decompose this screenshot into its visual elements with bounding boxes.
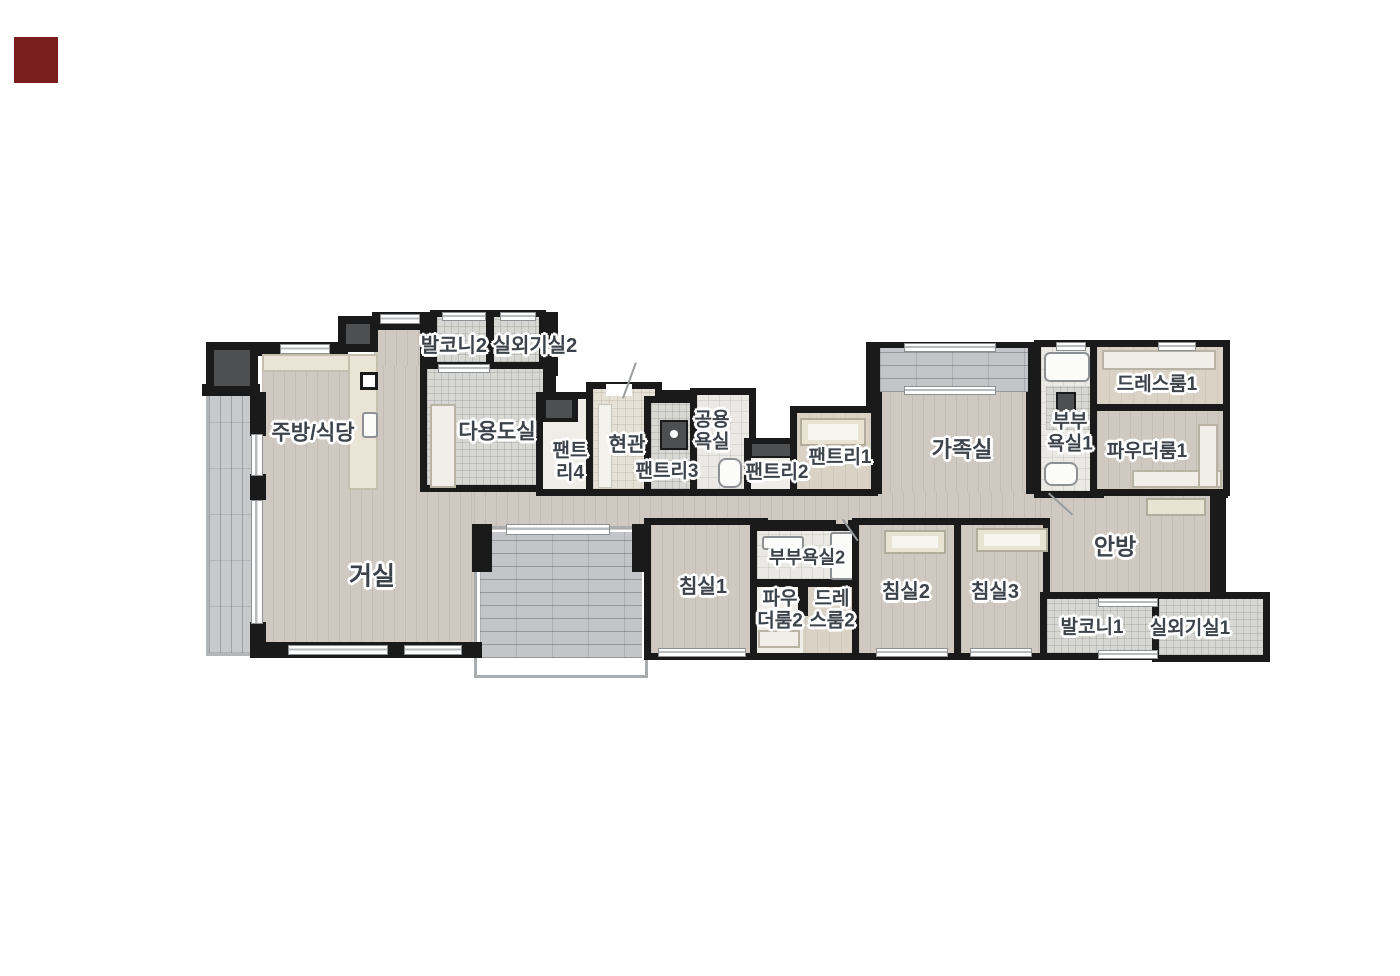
vanity-counter bbox=[1198, 424, 1218, 488]
room-label-master-bath1-line2: 욕실1 bbox=[1047, 434, 1093, 456]
room-label-entrance: 현관 bbox=[609, 434, 646, 458]
room-label-powder2-line2: 더룸2 bbox=[757, 611, 803, 633]
window bbox=[904, 343, 996, 352]
room-label-pantry2: 팬트리2 bbox=[745, 462, 808, 484]
window bbox=[876, 648, 948, 657]
room-label-common-bath-line1: 공용 bbox=[695, 410, 730, 432]
room-label-balcony2-outdoor2: 발코니2 실외기실2 bbox=[421, 335, 578, 359]
left-balcony-floor bbox=[206, 392, 256, 656]
window bbox=[438, 364, 490, 373]
room-label-bedroom2: 침실2 bbox=[882, 581, 930, 605]
room-label-pantry4-line1: 팬트 bbox=[553, 441, 588, 463]
window bbox=[970, 648, 1032, 657]
room-label-pantry1: 팬트리1 bbox=[808, 447, 871, 469]
bathtub bbox=[1044, 352, 1090, 382]
floor-plan: 발코니2 실외기실2 주방/식당 다용도실 팬트리4 현관 팬트리3 공용욕실 … bbox=[0, 0, 1400, 976]
room-label-bedroom1: 침실1 bbox=[679, 576, 727, 600]
kitchen-counter bbox=[262, 354, 350, 372]
duct-shaft bbox=[546, 400, 572, 418]
window bbox=[288, 645, 388, 655]
floor-kitchen-nook bbox=[374, 326, 424, 366]
cooktop bbox=[360, 372, 378, 390]
room-label-powder2: 파우더룸2 bbox=[757, 589, 803, 634]
room-label-powder2-line1: 파우 bbox=[757, 589, 803, 611]
room-label-pantry4-line2: 리4 bbox=[553, 463, 588, 485]
room-label-utility: 다용도실 bbox=[458, 421, 535, 446]
wall-segment bbox=[1210, 488, 1226, 608]
red-marker-square bbox=[14, 37, 58, 83]
window bbox=[658, 648, 746, 657]
window bbox=[1098, 650, 1158, 659]
window bbox=[1098, 598, 1158, 607]
room-label-balcony1: 발코니1 bbox=[1060, 617, 1123, 639]
window bbox=[506, 524, 610, 535]
wall-segment bbox=[250, 474, 266, 500]
closet-inner bbox=[984, 534, 1040, 546]
kitchen-sink bbox=[362, 412, 378, 438]
room-label-pantry4: 팬트리4 bbox=[553, 441, 588, 486]
room-label-powder1: 파우더룸1 bbox=[1107, 441, 1188, 463]
room-label-kitchen-dining: 주방/식당 bbox=[271, 422, 354, 447]
wall-segment bbox=[250, 392, 266, 436]
window bbox=[380, 314, 420, 324]
room-label-master-bath1: 부부욕실1 bbox=[1047, 412, 1093, 457]
washbasin-drain bbox=[670, 430, 678, 438]
toilet bbox=[718, 458, 742, 488]
wall-segment bbox=[472, 524, 492, 572]
room-label-living: 거실 bbox=[349, 562, 395, 592]
room-label-bedroom3: 침실3 bbox=[971, 581, 1019, 605]
utility-cabinet bbox=[430, 404, 456, 488]
room-label-dress2-line1: 드레 bbox=[809, 589, 855, 611]
room-label-outdoor-unit1: 실외기실1 bbox=[1150, 618, 1231, 640]
window bbox=[404, 645, 462, 655]
room-label-dress2: 드레스룸2 bbox=[809, 589, 855, 634]
wardrobe bbox=[1102, 350, 1216, 370]
room-label-pantry3: 팬트리3 bbox=[635, 461, 698, 483]
bathtub-small bbox=[1044, 462, 1078, 486]
room-label-dress1: 드레스룸1 bbox=[1117, 374, 1198, 396]
window bbox=[904, 386, 996, 395]
terrace-floor bbox=[480, 532, 642, 658]
room-label-common-bath-line2: 욕실 bbox=[695, 432, 730, 454]
room-label-family: 가족실 bbox=[932, 437, 993, 463]
closet-inner bbox=[808, 424, 858, 440]
room-label-master-bedroom: 안방 bbox=[1094, 533, 1136, 560]
room-label-dress2-line2: 스룸2 bbox=[809, 611, 855, 633]
window bbox=[280, 344, 330, 354]
duct-shaft bbox=[346, 324, 370, 344]
room-label-common-bath: 공용욕실 bbox=[695, 410, 730, 455]
duct-shaft bbox=[214, 350, 250, 386]
window bbox=[500, 312, 536, 321]
window bbox=[251, 434, 263, 476]
closet-inner bbox=[892, 536, 938, 548]
window bbox=[442, 312, 486, 321]
room-label-master-bath1-line1: 부부 bbox=[1047, 412, 1093, 434]
closet bbox=[1146, 498, 1206, 516]
window bbox=[1158, 342, 1196, 351]
window bbox=[1056, 342, 1086, 351]
window bbox=[251, 500, 263, 624]
room-label-master-bath2: 부부욕실2 bbox=[769, 547, 845, 568]
